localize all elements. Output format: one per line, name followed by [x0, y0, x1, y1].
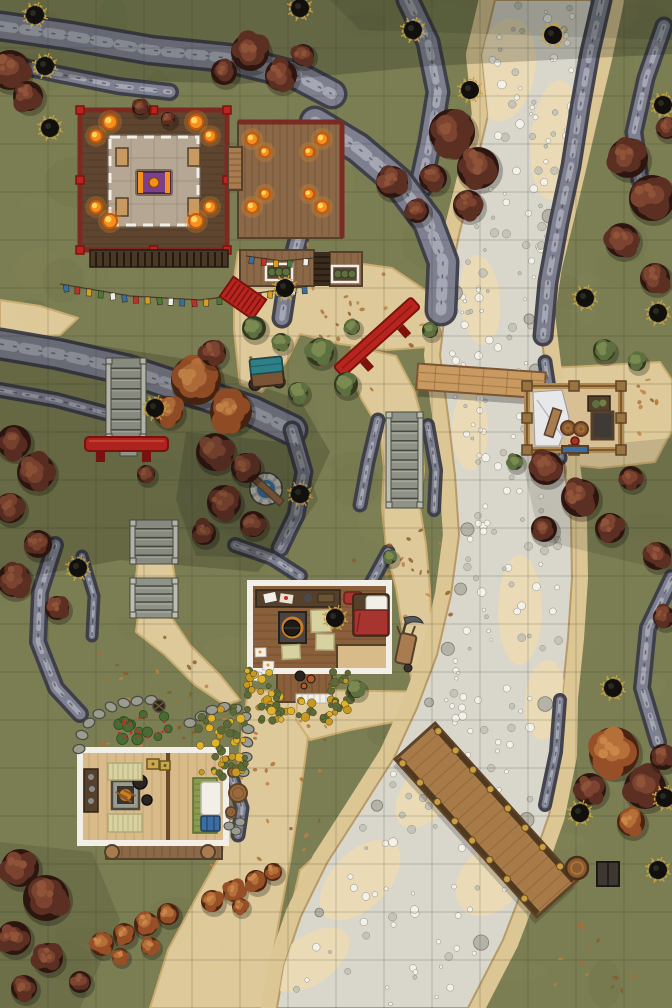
flower: [276, 711, 281, 716]
flower: [320, 714, 325, 719]
prayer-flag: [302, 287, 307, 294]
flower: [330, 678, 339, 687]
hut-post: [616, 445, 626, 455]
hut-post: [569, 381, 579, 391]
folded-blanket: [201, 816, 220, 831]
pot: [142, 795, 152, 805]
altar-idol: [149, 178, 159, 188]
flower: [212, 753, 219, 760]
side-room: [337, 645, 389, 671]
flower: [244, 706, 250, 712]
flower: [217, 706, 224, 713]
flower: [343, 706, 351, 714]
flower: [211, 739, 219, 747]
flower: [244, 682, 250, 688]
flower: [332, 702, 340, 710]
flower: [327, 711, 333, 717]
stool: [201, 845, 215, 859]
prayer-flag: [287, 260, 292, 267]
barrel: [574, 422, 588, 436]
berry: [138, 735, 141, 738]
prayer-flag: [274, 260, 279, 267]
flower: [203, 718, 209, 724]
bench: [188, 148, 200, 166]
temple-stilts: [90, 250, 228, 267]
flower: [230, 708, 237, 715]
pot: [295, 671, 305, 681]
flower: [307, 699, 316, 708]
workshop-hut: [522, 381, 626, 455]
hut-post: [522, 413, 532, 423]
flower: [275, 691, 281, 697]
flower: [310, 709, 317, 716]
berry: [135, 728, 138, 731]
round-table: [229, 784, 247, 802]
berry: [129, 723, 132, 726]
berry: [124, 719, 127, 722]
prayer-flag: [180, 299, 185, 306]
berry: [138, 731, 141, 734]
prayer-flag: [145, 297, 150, 304]
prayer-flag: [63, 285, 69, 293]
berry: [166, 729, 169, 732]
tatami-mat: [282, 645, 301, 660]
flower: [278, 717, 284, 723]
hut-post: [522, 445, 532, 455]
hut-post: [616, 381, 626, 391]
flower: [343, 678, 348, 683]
flower: [326, 718, 333, 725]
flower: [345, 670, 351, 676]
flower: [199, 769, 205, 775]
berry: [163, 720, 166, 723]
barrel: [561, 421, 575, 435]
prayer-flag: [303, 259, 309, 266]
flower: [266, 683, 271, 688]
flower: [222, 756, 228, 762]
berry: [124, 735, 127, 738]
berry: [138, 716, 141, 719]
flower: [243, 761, 249, 767]
temple-post: [76, 246, 84, 254]
stone: [224, 822, 234, 830]
flower: [248, 687, 255, 694]
flower: [245, 668, 250, 673]
flower: [242, 755, 248, 761]
flower: [268, 691, 274, 697]
prayer-flag: [168, 298, 173, 305]
prayer-flag: [110, 293, 116, 301]
temple-post: [223, 106, 231, 114]
planter-box: [332, 266, 358, 282]
stone: [235, 818, 245, 826]
flower: [226, 729, 234, 737]
mortar: [304, 594, 312, 602]
berry: [161, 731, 164, 734]
pot: [307, 675, 315, 683]
prayer-flag: [267, 291, 273, 299]
flower: [258, 675, 266, 683]
stone-stairs: [386, 412, 423, 508]
map-canvas: [0, 0, 672, 1008]
berry: [155, 732, 158, 735]
berry: [147, 736, 150, 739]
south-house: [80, 750, 226, 859]
prayer-flag: [217, 298, 222, 305]
flower: [329, 668, 336, 675]
flower: [299, 698, 305, 704]
temple: [76, 106, 231, 254]
tatami-mat: [316, 634, 334, 650]
flower: [287, 707, 295, 715]
prayer-flag: [157, 297, 163, 305]
tree: [640, 263, 672, 298]
prayer-flag: [86, 289, 91, 296]
hut-post: [616, 413, 626, 423]
temple-deck: [228, 122, 362, 286]
battle-map: [0, 0, 672, 1008]
prayer-flag: [98, 291, 103, 298]
trough: [592, 412, 613, 439]
flower: [195, 725, 203, 733]
flower: [240, 737, 245, 742]
flower: [216, 769, 223, 776]
prayer-flag: [192, 299, 198, 306]
flower: [269, 717, 277, 725]
prayer-flag: [133, 296, 138, 303]
berry: [118, 732, 121, 735]
flower: [217, 726, 225, 734]
prayer-flag: [75, 287, 80, 294]
flower: [236, 714, 245, 723]
berry: [121, 722, 124, 725]
stone-stairs: [130, 578, 178, 618]
prayer-flag: [261, 258, 266, 265]
bed: [201, 782, 221, 815]
flower: [258, 689, 264, 695]
flower: [229, 753, 236, 760]
temple-post: [76, 176, 84, 184]
temple-post: [76, 106, 84, 114]
pot: [301, 683, 307, 689]
prayer-flag: [203, 299, 209, 306]
red-pot: [571, 437, 579, 445]
flower: [223, 720, 231, 728]
stool: [105, 845, 119, 859]
flower: [196, 742, 204, 750]
flower: [296, 712, 302, 718]
prayer-flag: [122, 295, 128, 302]
flower: [301, 713, 310, 722]
berry: [145, 715, 148, 718]
wall-stone: [184, 718, 196, 728]
water-trough: [562, 446, 588, 453]
bench: [116, 148, 128, 166]
flower: [259, 715, 265, 721]
wall-stone: [93, 709, 106, 719]
flower: [266, 669, 273, 676]
flower: [208, 715, 216, 723]
barrel: [566, 857, 588, 879]
round-table: [226, 807, 236, 817]
prayer-flag: [249, 257, 255, 265]
hut-post: [522, 381, 532, 391]
berry: [130, 732, 133, 735]
wheel: [404, 664, 412, 672]
flower: [267, 706, 276, 715]
flower: [250, 671, 256, 677]
flower: [206, 724, 214, 732]
flower: [258, 703, 265, 710]
